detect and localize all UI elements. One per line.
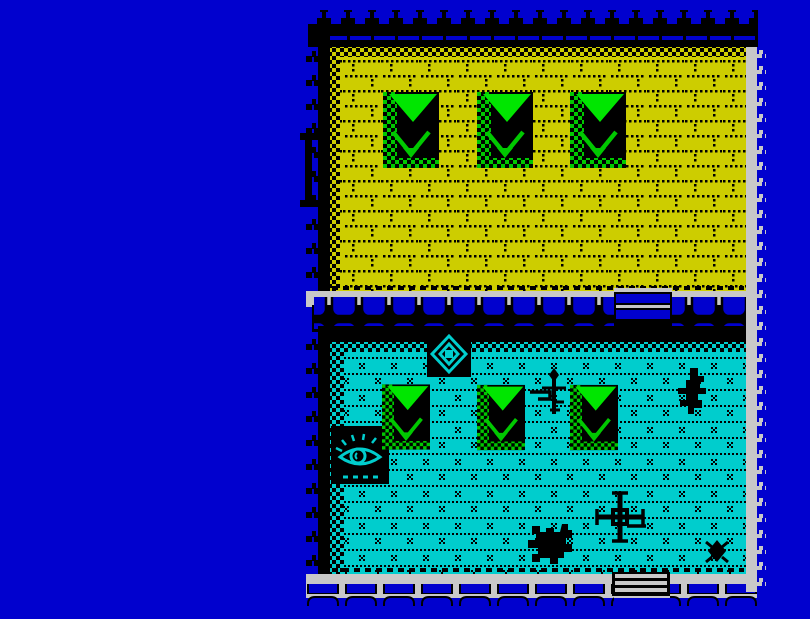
- scene-svg: [0, 0, 810, 619]
- shield-tile-sprite: [427, 331, 471, 377]
- room-divider: [306, 291, 757, 332]
- right-wall: [746, 47, 766, 592]
- bed-sprite: [383, 92, 439, 168]
- right-wall-hooks: [757, 47, 766, 592]
- door-bottom-sprite: [612, 572, 670, 596]
- bed-sprite: [382, 384, 430, 449]
- divider-crenellations-right: [672, 297, 752, 329]
- right-wall-band: [746, 47, 757, 592]
- bug-sprite: [706, 540, 728, 562]
- top-wall-band: [308, 40, 758, 47]
- bed-sprite: [570, 92, 626, 168]
- bottom-room-top-wall: [318, 326, 746, 344]
- left-wall-hooks-bottom: [306, 330, 318, 574]
- eye-tile-sprite: [331, 426, 389, 484]
- divider-crenellations-left: [314, 297, 614, 329]
- game-screen[interactable]: [0, 0, 810, 619]
- bed-sprite: [477, 385, 525, 450]
- yellow-floor-top-border: [330, 47, 746, 57]
- bed-sprite: [477, 92, 533, 168]
- yellow-floor: [330, 47, 746, 291]
- yellow-floor-left-border: [330, 47, 340, 291]
- left-wall-bottom-room: [318, 326, 330, 574]
- cyan-floor-top-border: [330, 342, 746, 352]
- bottom-scallop-left: [306, 584, 614, 606]
- door-mid-sprite: [614, 288, 672, 330]
- bottom-scallop-right: [670, 584, 757, 606]
- left-wall-top-room: [318, 30, 330, 291]
- bed-sprite: [570, 385, 618, 450]
